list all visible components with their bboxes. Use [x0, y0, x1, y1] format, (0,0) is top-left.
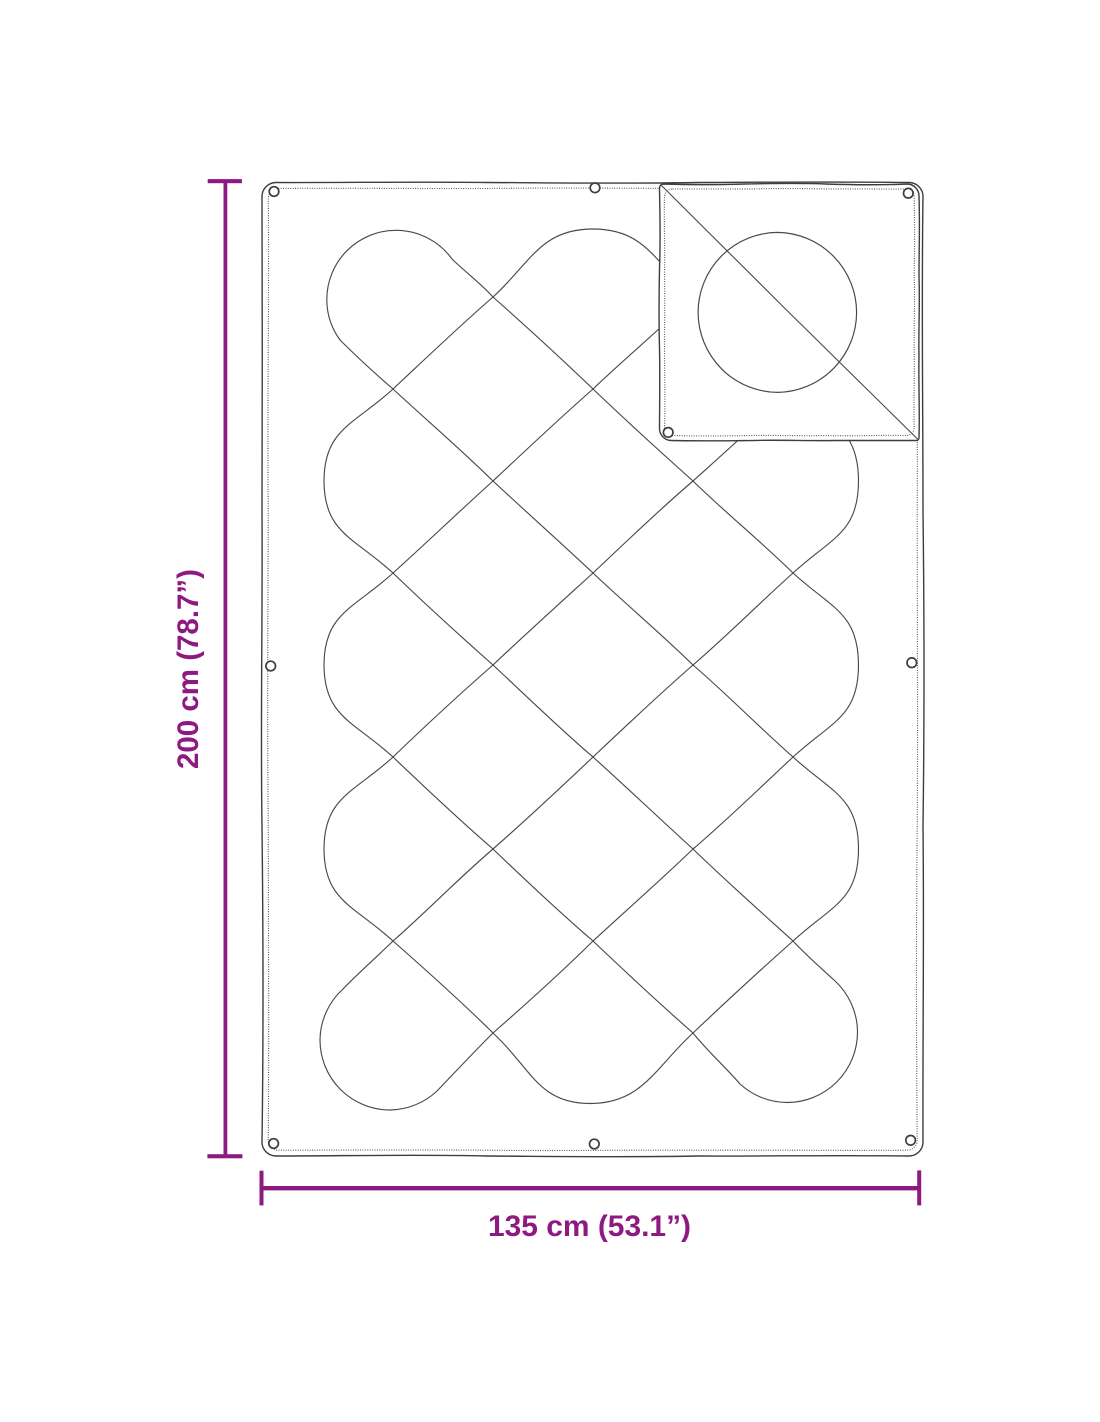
svg-text:200 cm (78.7”): 200 cm (78.7”) [172, 569, 205, 769]
svg-text:135 cm (53.1”): 135 cm (53.1”) [488, 1210, 691, 1243]
